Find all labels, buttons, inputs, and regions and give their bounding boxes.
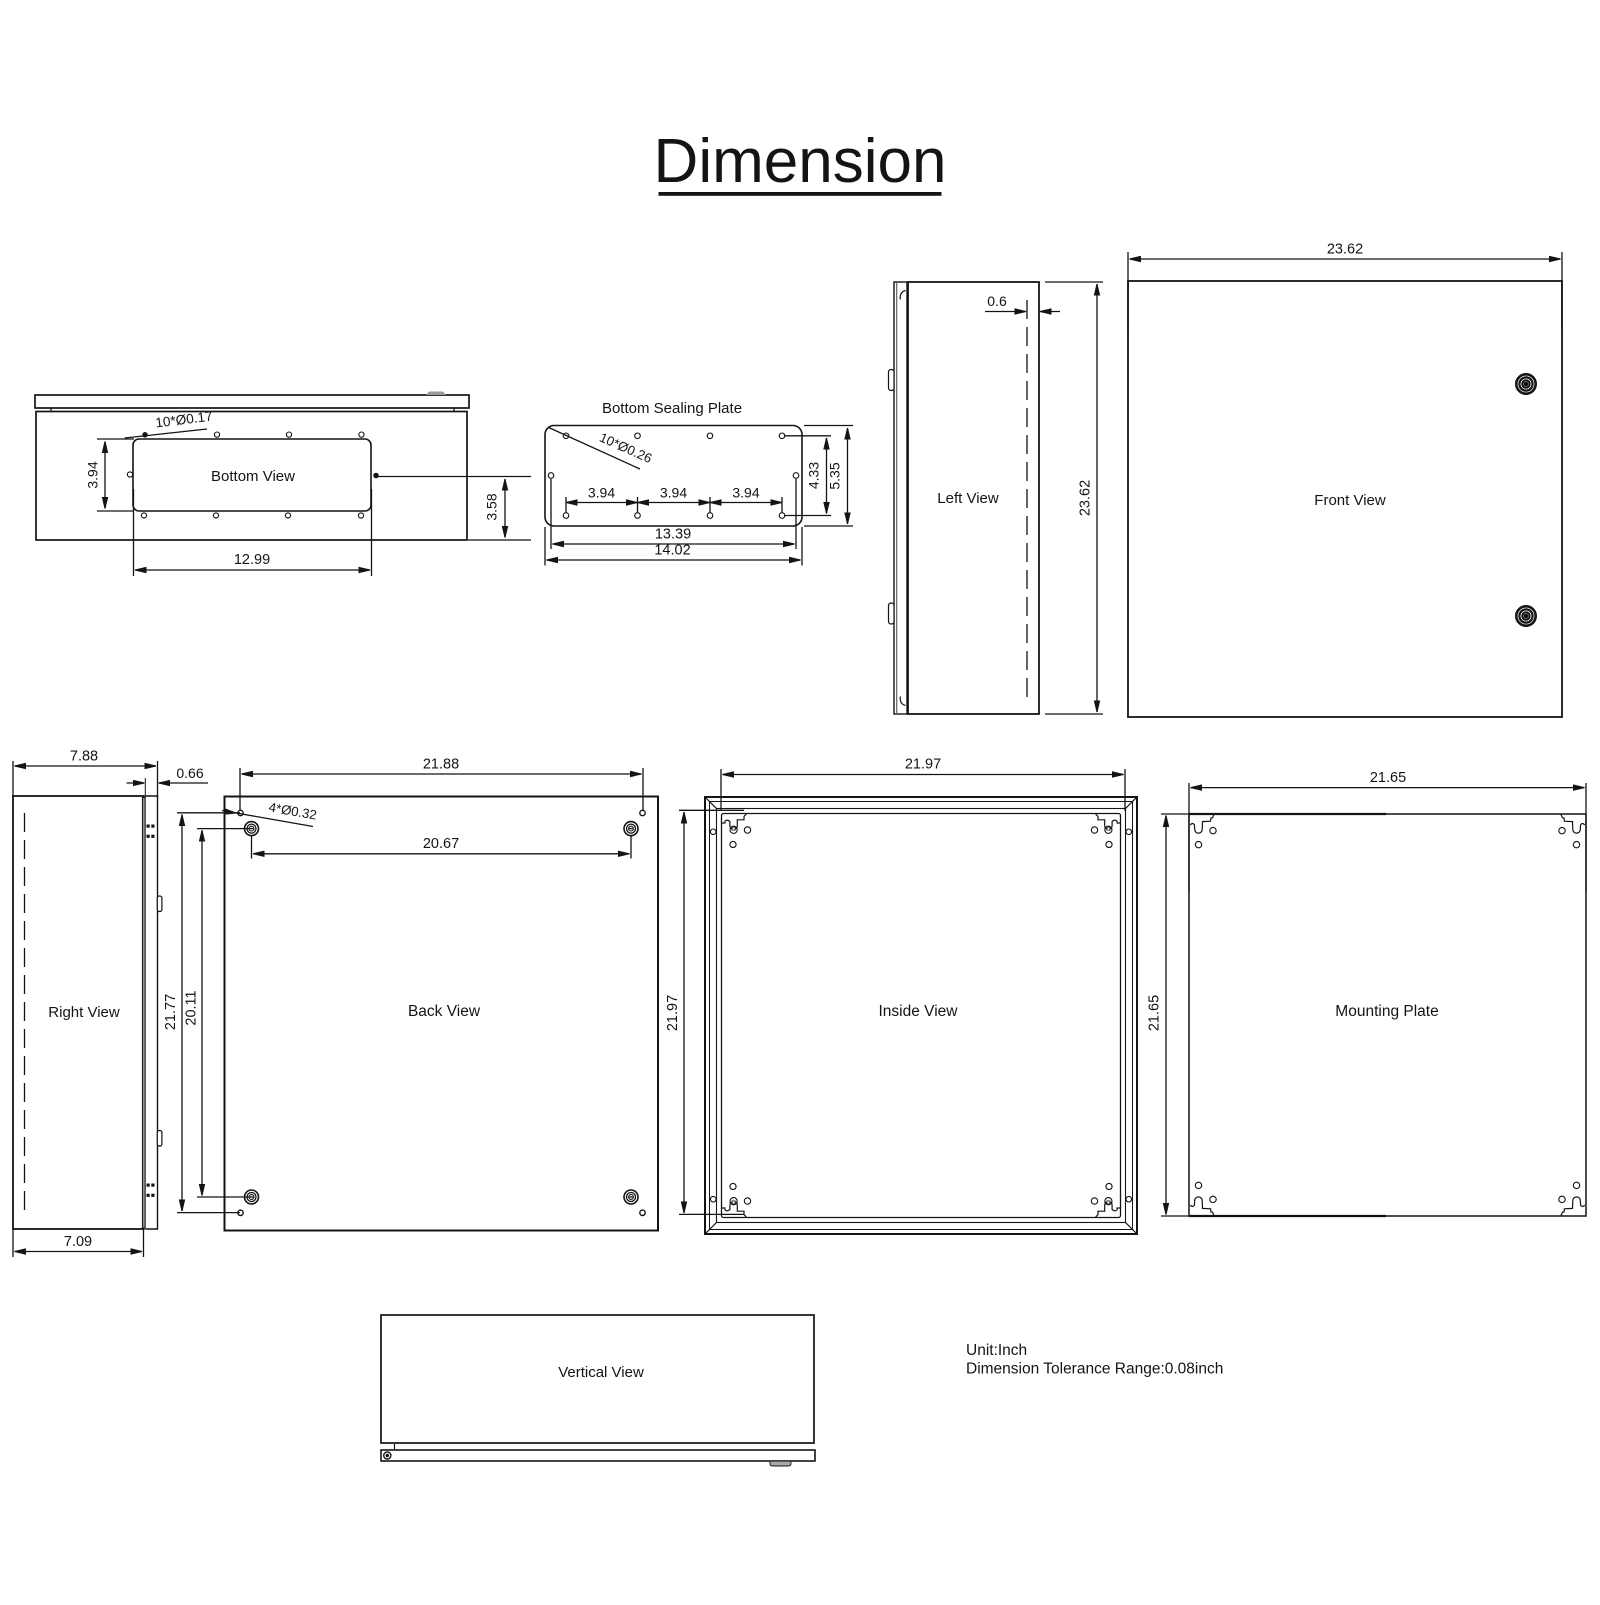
svg-text:Unit:Inch: Unit:Inch: [966, 1342, 1027, 1359]
svg-text:Dimension: Dimension: [654, 127, 947, 196]
svg-text:Left View: Left View: [937, 490, 999, 507]
svg-text:13.39: 13.39: [655, 527, 691, 543]
svg-text:21.65: 21.65: [1370, 770, 1406, 786]
svg-text:Vertical View: Vertical View: [558, 1364, 644, 1381]
svg-text:Inside View: Inside View: [879, 1003, 959, 1020]
svg-text:14.02: 14.02: [654, 543, 690, 559]
svg-text:Mounting Plate: Mounting Plate: [1335, 1003, 1438, 1020]
svg-text:20.11: 20.11: [184, 990, 200, 1025]
svg-text:5.35: 5.35: [827, 462, 843, 489]
svg-text:Bottom Sealing Plate: Bottom Sealing Plate: [602, 400, 742, 417]
svg-text:21.77: 21.77: [163, 994, 179, 1030]
svg-text:7.88: 7.88: [70, 749, 98, 765]
svg-text:21.97: 21.97: [905, 757, 941, 773]
svg-text:23.62: 23.62: [1327, 242, 1363, 258]
svg-text:3.58: 3.58: [484, 493, 500, 520]
svg-text:Bottom View: Bottom View: [211, 468, 295, 485]
svg-text:Back View: Back View: [408, 1003, 481, 1020]
svg-text:21.65: 21.65: [1147, 995, 1163, 1031]
svg-text:7.09: 7.09: [64, 1234, 92, 1250]
svg-text:23.62: 23.62: [1078, 480, 1094, 516]
svg-text:3.94: 3.94: [85, 461, 101, 488]
svg-text:0.6: 0.6: [987, 293, 1007, 309]
svg-text:3.94: 3.94: [588, 485, 615, 501]
svg-text:Front View: Front View: [1314, 492, 1386, 509]
svg-text:Dimension Tolerance Range:0.08: Dimension Tolerance Range:0.08inch: [966, 1361, 1223, 1378]
svg-text:10*Ø0.26: 10*Ø0.26: [597, 430, 654, 466]
svg-text:Right View: Right View: [48, 1004, 120, 1021]
svg-text:3.94: 3.94: [660, 485, 687, 501]
svg-text:4.33: 4.33: [806, 462, 822, 489]
svg-text:3.94: 3.94: [732, 485, 759, 501]
svg-text:20.67: 20.67: [423, 836, 459, 852]
svg-text:4*Ø0.32: 4*Ø0.32: [268, 799, 318, 822]
svg-text:21.88: 21.88: [423, 757, 459, 773]
svg-text:12.99: 12.99: [234, 552, 270, 568]
svg-text:21.97: 21.97: [665, 995, 681, 1031]
svg-text:0.66: 0.66: [176, 765, 203, 781]
